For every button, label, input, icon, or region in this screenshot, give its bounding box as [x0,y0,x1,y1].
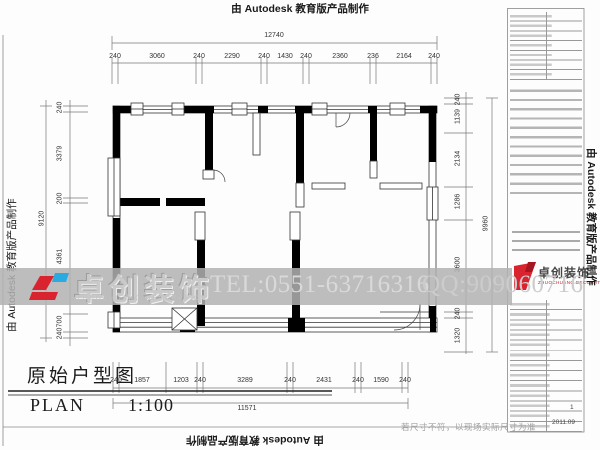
dim-label: 240 [391,377,419,384]
title-block-divider [546,12,547,80]
dim-label: 240 [292,53,320,60]
dim-label: 2431 [310,377,338,384]
qq-number: QQ:909060716 [422,271,584,299]
dim-label: 2164 [390,53,418,60]
dim-label: 1139 [455,102,462,132]
dim-label: 240 [186,377,214,384]
dim-label: 240 [57,93,64,123]
plan-label: PLAN [30,395,85,416]
dim-label: 1857 [128,377,156,384]
autodesk-watermark-left: 由 Autodesk 教育版产品制作 [4,198,19,332]
dim-label: 240 [420,53,448,60]
dim-left-total: 9120 [39,204,46,234]
dim-label: 240 [57,319,64,349]
autodesk-watermark-top: 由 Autodesk 教育版产品制作 [231,1,369,16]
dim-label: 2360 [326,53,354,60]
dim-label: 1286 [455,187,462,217]
watermark-band: 卓创装饰 ZHUOCHUANG DECORATION TEL:0551-6371… [0,268,512,305]
plan-scale: 1:100 [128,395,174,416]
drawing-date: 2011.09 [552,419,575,426]
brand-name-en: ZHUOCHUANG DECORATION [77,296,207,302]
phone-number: TEL:0551-63716316 [210,271,430,299]
dim-label: 236 [359,53,387,60]
autodesk-watermark-bottom: 由 Autodesk 教育版产品制作 [186,433,324,448]
dim-label: 240 [102,377,130,384]
title-block-legend [510,86,582,198]
dim-label: 4361 [57,242,64,272]
dim-label: 3379 [57,139,64,169]
dim-label: 2290 [218,53,246,60]
sheet-number: 1 [570,404,574,411]
shaft-box [172,308,197,330]
dim-bottom-total: 11571 [227,405,267,412]
dim-label: 2134 [455,144,462,174]
dim-right-total: 9960 [483,209,490,239]
dim-label: 3289 [231,377,259,384]
dim-label: 240 [276,377,304,384]
dim-label: 3060 [143,53,171,60]
brand-logo-icon [28,270,76,304]
dim-label: 240 [101,53,129,60]
title-block-notes [512,228,580,256]
dim-top-total: 12740 [244,32,304,39]
title-block-divider-2 [546,300,547,432]
brand-name-cn: 卓创装饰 [74,265,214,309]
dim-label: 200 [57,184,64,214]
autodesk-watermark-right: 由 Autodesk 教育版产品制作 [584,148,599,286]
site-dimension-note: 若尺寸不符，以现场实际尺寸为准 [401,421,536,433]
cad-drawing-sheet: 1 2011.09 卓创装饰 ZHUOCHUANG DECORATION 卓创装… [0,0,600,450]
dim-label: 1320 [455,321,462,351]
dim-label: 240 [185,53,213,60]
